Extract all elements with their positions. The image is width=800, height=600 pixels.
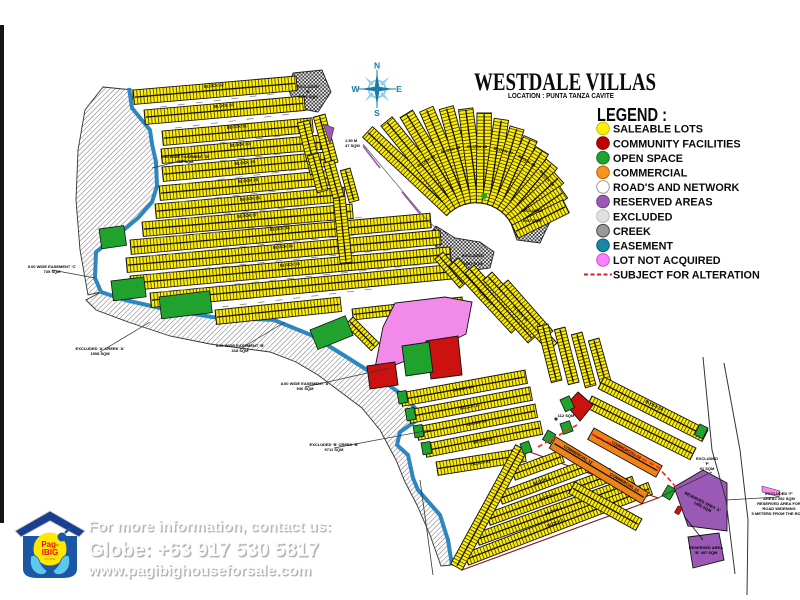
svg-text:COMMUNITY FACILITIES: COMMUNITY FACILITIES — [613, 138, 741, 150]
svg-text:LEGEND :: LEGEND : — [597, 105, 667, 125]
svg-text:Globe: +63 917 530 5817: Globe: +63 917 530 5817 — [88, 539, 319, 561]
svg-text:47 SQM: 47 SQM — [345, 143, 360, 148]
svg-text:LOT NOT ACQUIRED: LOT NOT ACQUIRED — [613, 255, 721, 267]
svg-text:LOCATION : PUNTA TANZA CAVITE: LOCATION : PUNTA TANZA CAVITE — [508, 91, 614, 100]
svg-text:COMMERCIAL: COMMERCIAL — [613, 168, 688, 180]
svg-text:For more information, contact: For more information, contact us: — [88, 518, 331, 535]
svg-text:SALEABLE LOTS: SALEABLE LOTS — [613, 124, 703, 136]
svg-text:W: W — [351, 84, 360, 94]
svg-text:1597 SQM: 1597 SQM — [463, 261, 483, 266]
svg-text:5 METERS FROM THE ROAD: 5 METERS FROM THE ROAD — [752, 511, 800, 516]
svg-text:SUBJECT FOR ALTERATION: SUBJECT FOR ALTERATION — [613, 270, 760, 282]
svg-text:CREEK: CREEK — [613, 226, 651, 238]
svg-text:www.pagibighouseforsale.com: www.pagibighouseforsale.com — [87, 562, 311, 579]
svg-text:1908 SQM: 1908 SQM — [90, 351, 110, 356]
svg-text:OPEN SPACE: OPEN SPACE — [613, 153, 683, 165]
svg-text:S: S — [374, 108, 380, 118]
svg-text:'B' 497 SQM: 'B' 497 SQM — [695, 550, 718, 555]
svg-text:EASEMENT: EASEMENT — [613, 241, 673, 253]
svg-text:91 SQM: 91 SQM — [700, 466, 715, 471]
svg-text:F U N D: F U N D — [45, 557, 57, 561]
svg-text:936 SQM: 936 SQM — [297, 386, 315, 391]
svg-text:605 SQM: 605 SQM — [177, 159, 195, 164]
svg-text:N: N — [374, 61, 380, 71]
svg-text:735 SQM: 735 SQM — [44, 269, 62, 274]
svg-text:318 SQM: 318 SQM — [232, 348, 250, 353]
svg-text:RESERVED AREAS: RESERVED AREAS — [613, 197, 713, 209]
svg-text:BLOCK 28: BLOCK 28 — [467, 144, 488, 149]
svg-text:IBIG: IBIG — [42, 548, 58, 557]
svg-text:112 SQM: 112 SQM — [558, 413, 575, 418]
svg-text:EXCLUDED: EXCLUDED — [613, 211, 673, 223]
svg-text:1047 SQM: 1047 SQM — [522, 218, 542, 223]
svg-text:1699 SQM: 1699 SQM — [298, 94, 318, 99]
svg-text:ROAD'S AND NETWORK: ROAD'S AND NETWORK — [613, 182, 740, 194]
svg-text:EXCLUDED: EXCLUDED — [462, 253, 484, 258]
svg-text:9711 SQM: 9711 SQM — [325, 447, 345, 452]
svg-text:E: E — [396, 84, 402, 94]
svg-text:EXCLUDED: EXCLUDED — [521, 208, 543, 213]
